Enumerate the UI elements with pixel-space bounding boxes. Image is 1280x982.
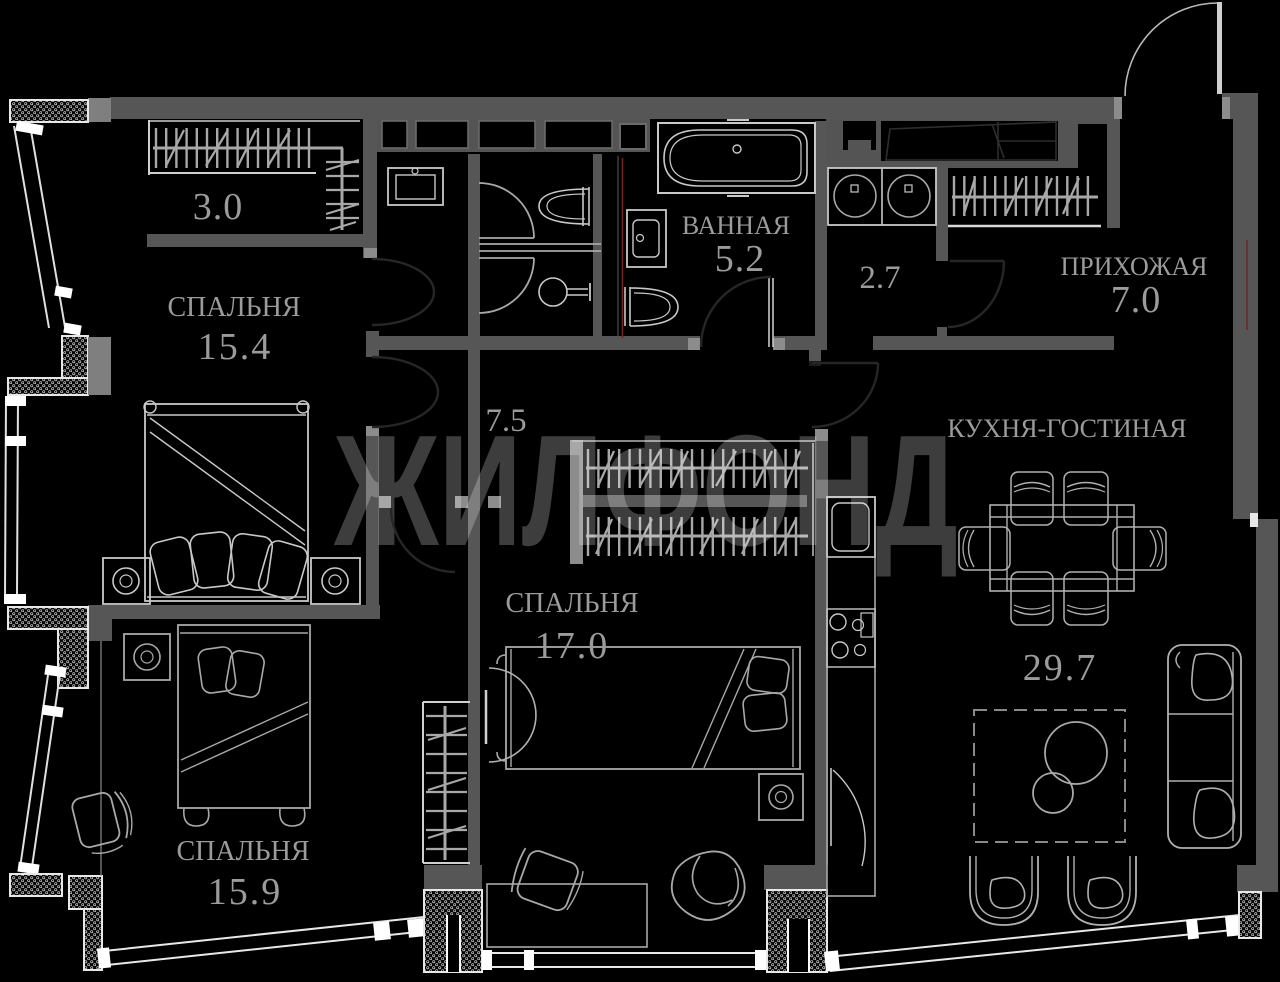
svg-text:5.2: 5.2: [715, 238, 766, 280]
svg-text:ВАННАЯ: ВАННАЯ: [682, 211, 790, 240]
svg-text:29.7: 29.7: [1023, 647, 1098, 689]
svg-text:СПАЛЬНЯ: СПАЛЬНЯ: [505, 588, 638, 619]
svg-text:15.4: 15.4: [198, 326, 273, 368]
svg-text:2.7: 2.7: [859, 260, 900, 296]
svg-text:КУХНЯ-ГОСТИНАЯ: КУХНЯ-ГОСТИНАЯ: [947, 414, 1186, 443]
svg-text:17.0: 17.0: [535, 625, 610, 667]
svg-text:15.9: 15.9: [208, 871, 283, 913]
svg-text:СПАЛЬНЯ: СПАЛЬНЯ: [167, 292, 300, 323]
svg-text:3.0: 3.0: [193, 186, 244, 228]
svg-text:7.0: 7.0: [1111, 279, 1162, 321]
svg-text:ЖИЛФОНД: ЖИЛФОНД: [333, 403, 958, 579]
svg-text:ПРИХОЖАЯ: ПРИХОЖАЯ: [1060, 252, 1207, 281]
svg-text:СПАЛЬНЯ: СПАЛЬНЯ: [176, 836, 309, 867]
